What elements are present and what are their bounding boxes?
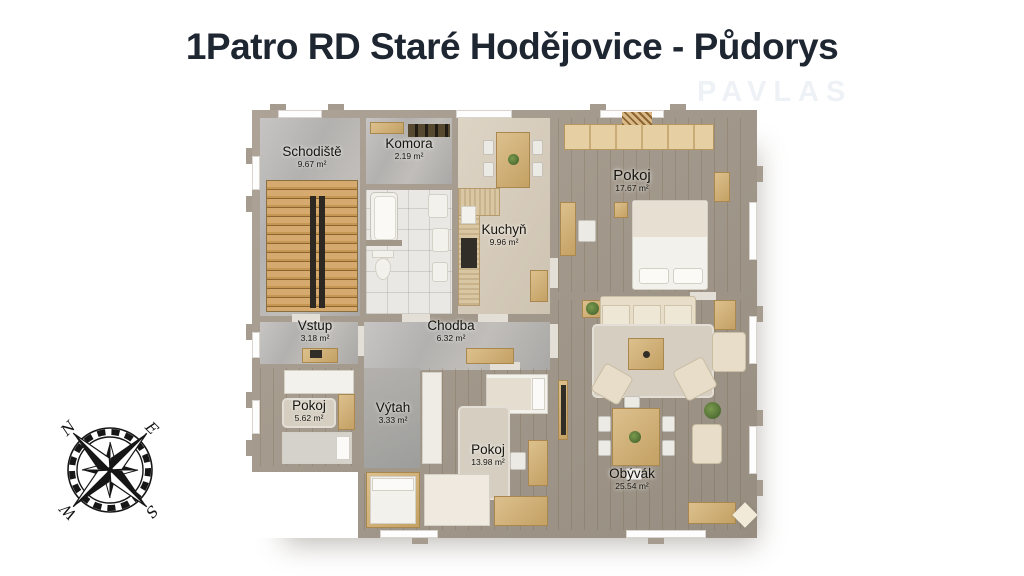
wall-stub xyxy=(412,538,428,544)
pillow xyxy=(532,378,545,410)
plant xyxy=(508,154,519,165)
window xyxy=(278,110,322,118)
wardrobe xyxy=(564,124,714,150)
wall-stub xyxy=(757,166,763,182)
wall-stub xyxy=(246,148,252,164)
chair xyxy=(662,440,675,456)
window xyxy=(749,202,757,260)
wall-stub xyxy=(757,410,763,426)
room-label-komora: Komora 2.19 m² xyxy=(366,136,452,162)
room-label-pokoj-velky: Pokoj 17.67 m² xyxy=(582,168,682,194)
wall-stub xyxy=(270,104,286,110)
plant xyxy=(704,402,721,419)
chair xyxy=(532,140,543,155)
wardrobe xyxy=(284,370,354,394)
window xyxy=(252,156,260,190)
decor-item xyxy=(643,351,650,358)
page-title: 1Patro RD Staré Hodějovice - Půdorys xyxy=(0,26,1024,68)
sink xyxy=(432,262,448,282)
bench xyxy=(688,502,736,524)
room-label-vstup: Vstup 3.18 m² xyxy=(265,318,365,344)
stair-handrail xyxy=(319,196,325,308)
window xyxy=(626,530,706,538)
shower xyxy=(428,194,448,218)
sink xyxy=(432,228,449,252)
plan-outside-notch xyxy=(252,472,358,538)
watermark: PAVLAS xyxy=(697,76,852,109)
stair-handrail xyxy=(310,196,316,308)
wall-stub xyxy=(246,196,252,212)
window-hatch xyxy=(622,112,652,125)
bathtub-basin xyxy=(374,196,396,240)
door-opening xyxy=(550,258,558,288)
chair xyxy=(598,416,611,432)
toilet-tank xyxy=(372,250,394,258)
armchair xyxy=(692,424,722,464)
room-label-obyvak: Obývák 25.54 m² xyxy=(582,466,682,492)
bed-blanket xyxy=(633,201,707,237)
kitchen-cabinet xyxy=(530,270,548,302)
wall-stub xyxy=(757,480,763,496)
door-opening xyxy=(550,324,558,358)
chair xyxy=(483,140,494,155)
plant xyxy=(586,302,599,315)
wall-stub xyxy=(246,392,252,408)
chair xyxy=(624,396,640,408)
dresser xyxy=(714,172,730,202)
wall-stub xyxy=(648,538,664,544)
room-label-kuchyn: Kuchyň 9.96 m² xyxy=(458,222,550,248)
wall-stub xyxy=(670,104,686,110)
window xyxy=(380,530,438,538)
room-label-chodba: Chodba 6.32 m² xyxy=(401,318,501,344)
desk xyxy=(560,202,576,256)
pillow xyxy=(673,268,703,284)
room-label-pokoj-stredni: Pokoj 13.98 m² xyxy=(438,442,538,468)
decor-item xyxy=(310,350,322,358)
nightstand xyxy=(614,202,628,218)
wardrobe xyxy=(424,474,490,526)
cabinet xyxy=(714,300,736,330)
shelf xyxy=(370,122,404,134)
entrance-door xyxy=(252,332,260,358)
floor-plan: Schodiště 9.67 m² Komora 2.19 m² Kuchyň … xyxy=(252,110,757,538)
wc-partition xyxy=(366,240,402,246)
sideboard xyxy=(466,348,514,364)
plant xyxy=(629,431,641,443)
page: 1Patro RD Staré Hodějovice - Půdorys PAV… xyxy=(0,0,1024,576)
wall-stub xyxy=(246,440,252,456)
tv xyxy=(561,385,566,435)
window xyxy=(749,316,757,364)
cabinet xyxy=(494,496,548,526)
chair xyxy=(578,220,596,242)
wall-stub xyxy=(757,306,763,322)
chair xyxy=(662,416,675,432)
room-label-vytah: Výtah 3.33 m² xyxy=(343,400,443,426)
wall-stub xyxy=(328,104,344,110)
loveseat xyxy=(712,332,746,372)
window xyxy=(749,426,757,474)
pillow xyxy=(372,478,414,491)
wall-stub xyxy=(590,104,606,110)
room-label-schodiste: Schodiště 9.67 m² xyxy=(262,144,362,170)
chair xyxy=(532,162,543,177)
pillow xyxy=(639,268,669,284)
chair xyxy=(483,162,494,177)
compass-rose: N E S W xyxy=(46,406,174,534)
chair xyxy=(598,440,611,456)
window xyxy=(456,110,512,118)
wall-stub xyxy=(246,324,252,340)
pillow xyxy=(336,436,350,460)
